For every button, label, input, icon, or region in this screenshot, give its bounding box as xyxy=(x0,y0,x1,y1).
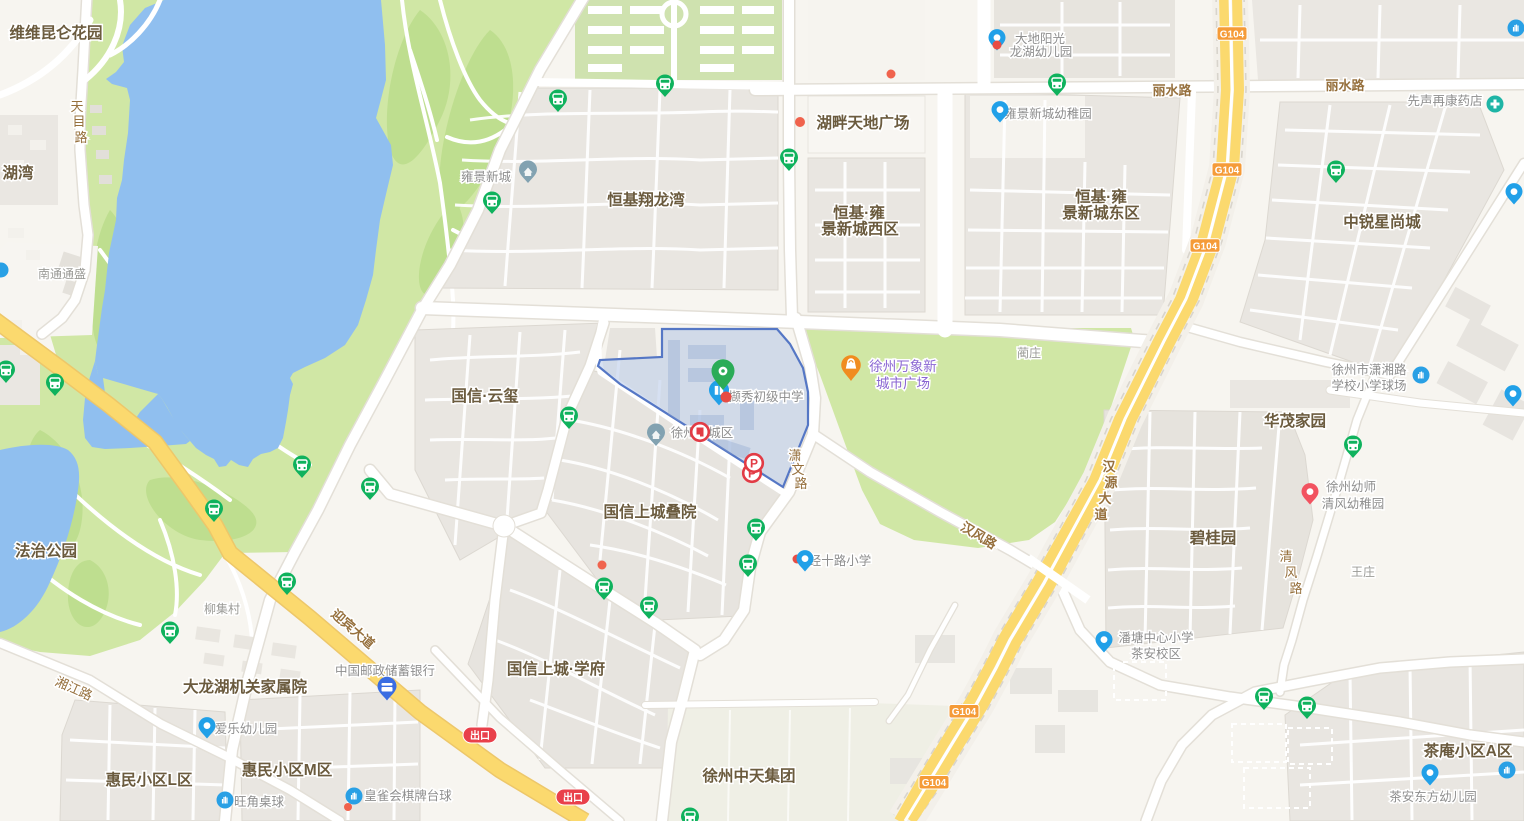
svg-text:出口: 出口 xyxy=(563,791,583,804)
svg-text:国信上城叠院: 国信上城叠院 xyxy=(603,502,697,521)
svg-text:中国邮政储蓄银行: 中国邮政储蓄银行 xyxy=(335,663,435,678)
svg-text:惠民小区M区: 惠民小区M区 xyxy=(242,760,333,779)
svg-text:惠民小区L区: 惠民小区L区 xyxy=(106,770,193,789)
svg-text:潇: 潇 xyxy=(788,448,801,463)
svg-text:茶安东方幼儿园: 茶安东方幼儿园 xyxy=(1389,789,1477,804)
svg-text:学校小学球场: 学校小学球场 xyxy=(1331,378,1406,393)
svg-text:丽水路: 丽水路 xyxy=(1325,78,1365,93)
svg-text:风: 风 xyxy=(1284,565,1297,580)
svg-text:撷秀初级中学: 撷秀初级中学 xyxy=(728,389,803,404)
svg-text:爱乐幼儿园: 爱乐幼儿园 xyxy=(215,722,278,736)
svg-text:茶安校区: 茶安校区 xyxy=(1131,646,1181,661)
svg-text:道: 道 xyxy=(1094,507,1107,522)
svg-text:湖湾: 湖湾 xyxy=(2,163,34,182)
svg-text:雍景新城: 雍景新城 xyxy=(461,169,512,184)
svg-text:文: 文 xyxy=(791,462,804,477)
svg-text:皇雀会棋牌台球: 皇雀会棋牌台球 xyxy=(364,788,452,803)
svg-text:恒基·雍: 恒基·雍 xyxy=(1075,187,1127,206)
svg-text:徐州市潇湘路: 徐州市潇湘路 xyxy=(1331,362,1407,377)
svg-text:G104: G104 xyxy=(952,707,977,718)
svg-text:国信·云玺: 国信·云玺 xyxy=(451,386,519,405)
svg-text:龙湖幼儿园: 龙湖幼儿园 xyxy=(1010,44,1073,59)
svg-text:南通通盛: 南通通盛 xyxy=(38,266,86,281)
svg-text:国信上城·学府: 国信上城·学府 xyxy=(507,659,606,678)
svg-text:出口: 出口 xyxy=(470,729,490,742)
svg-text:大龙湖机关家属院: 大龙湖机关家属院 xyxy=(183,677,308,696)
svg-text:路: 路 xyxy=(74,130,87,145)
svg-text:碧桂园: 碧桂园 xyxy=(1189,528,1237,547)
svg-text:经十路小学: 经十路小学 xyxy=(809,553,872,568)
svg-text:G104: G104 xyxy=(1220,30,1245,41)
svg-text:徐州中天集团: 徐州中天集团 xyxy=(701,766,795,785)
svg-text:王庄: 王庄 xyxy=(1351,564,1375,579)
svg-text:中锐星尚城: 中锐星尚城 xyxy=(1343,212,1421,231)
svg-text:恒基·雍: 恒基·雍 xyxy=(833,203,885,222)
svg-text:G104: G104 xyxy=(1215,166,1240,177)
svg-text:徐州幼师: 徐州幼师 xyxy=(1326,479,1376,494)
svg-text:城市广场: 城市广场 xyxy=(876,375,930,391)
svg-text:湖畔天地广场: 湖畔天地广场 xyxy=(816,113,909,132)
svg-text:汉: 汉 xyxy=(1102,459,1116,474)
svg-text:景新城西区: 景新城西区 xyxy=(821,219,899,238)
svg-text:清风幼稚园: 清风幼稚园 xyxy=(1322,497,1385,511)
svg-text:大地阳光: 大地阳光 xyxy=(1015,32,1065,46)
svg-text:旺角桌球: 旺角桌球 xyxy=(234,795,285,809)
svg-text:源: 源 xyxy=(1104,475,1117,490)
svg-text:柳集村: 柳集村 xyxy=(204,601,240,616)
svg-text:G104: G104 xyxy=(1193,242,1218,253)
svg-text:徐州万象新: 徐州万象新 xyxy=(869,359,937,374)
svg-text:清: 清 xyxy=(1279,549,1292,564)
svg-text:天: 天 xyxy=(70,99,83,114)
svg-text:维维昆仑花园: 维维昆仑花园 xyxy=(9,23,102,42)
svg-text:路: 路 xyxy=(1289,581,1302,596)
svg-text:蔺庄: 蔺庄 xyxy=(1017,345,1041,360)
svg-text:法治公园: 法治公园 xyxy=(15,541,77,560)
svg-text:丽水路: 丽水路 xyxy=(1152,83,1192,98)
svg-text:先声再康药店: 先声再康药店 xyxy=(1407,93,1482,108)
svg-text:潘塘中心小学: 潘塘中心小学 xyxy=(1118,630,1193,645)
svg-text:恒基翔龙湾: 恒基翔龙湾 xyxy=(607,190,685,209)
svg-text:景新城东区: 景新城东区 xyxy=(1062,203,1140,222)
svg-text:华茂家园: 华茂家园 xyxy=(1264,411,1326,430)
svg-text:茶庵小区A区: 茶庵小区A区 xyxy=(1424,741,1513,760)
svg-text:雍景新城幼稚园: 雍景新城幼稚园 xyxy=(1004,106,1092,121)
svg-text:G104: G104 xyxy=(922,778,947,789)
svg-text:路: 路 xyxy=(794,476,807,491)
svg-text:目: 目 xyxy=(72,114,85,129)
svg-text:大: 大 xyxy=(1098,491,1111,506)
